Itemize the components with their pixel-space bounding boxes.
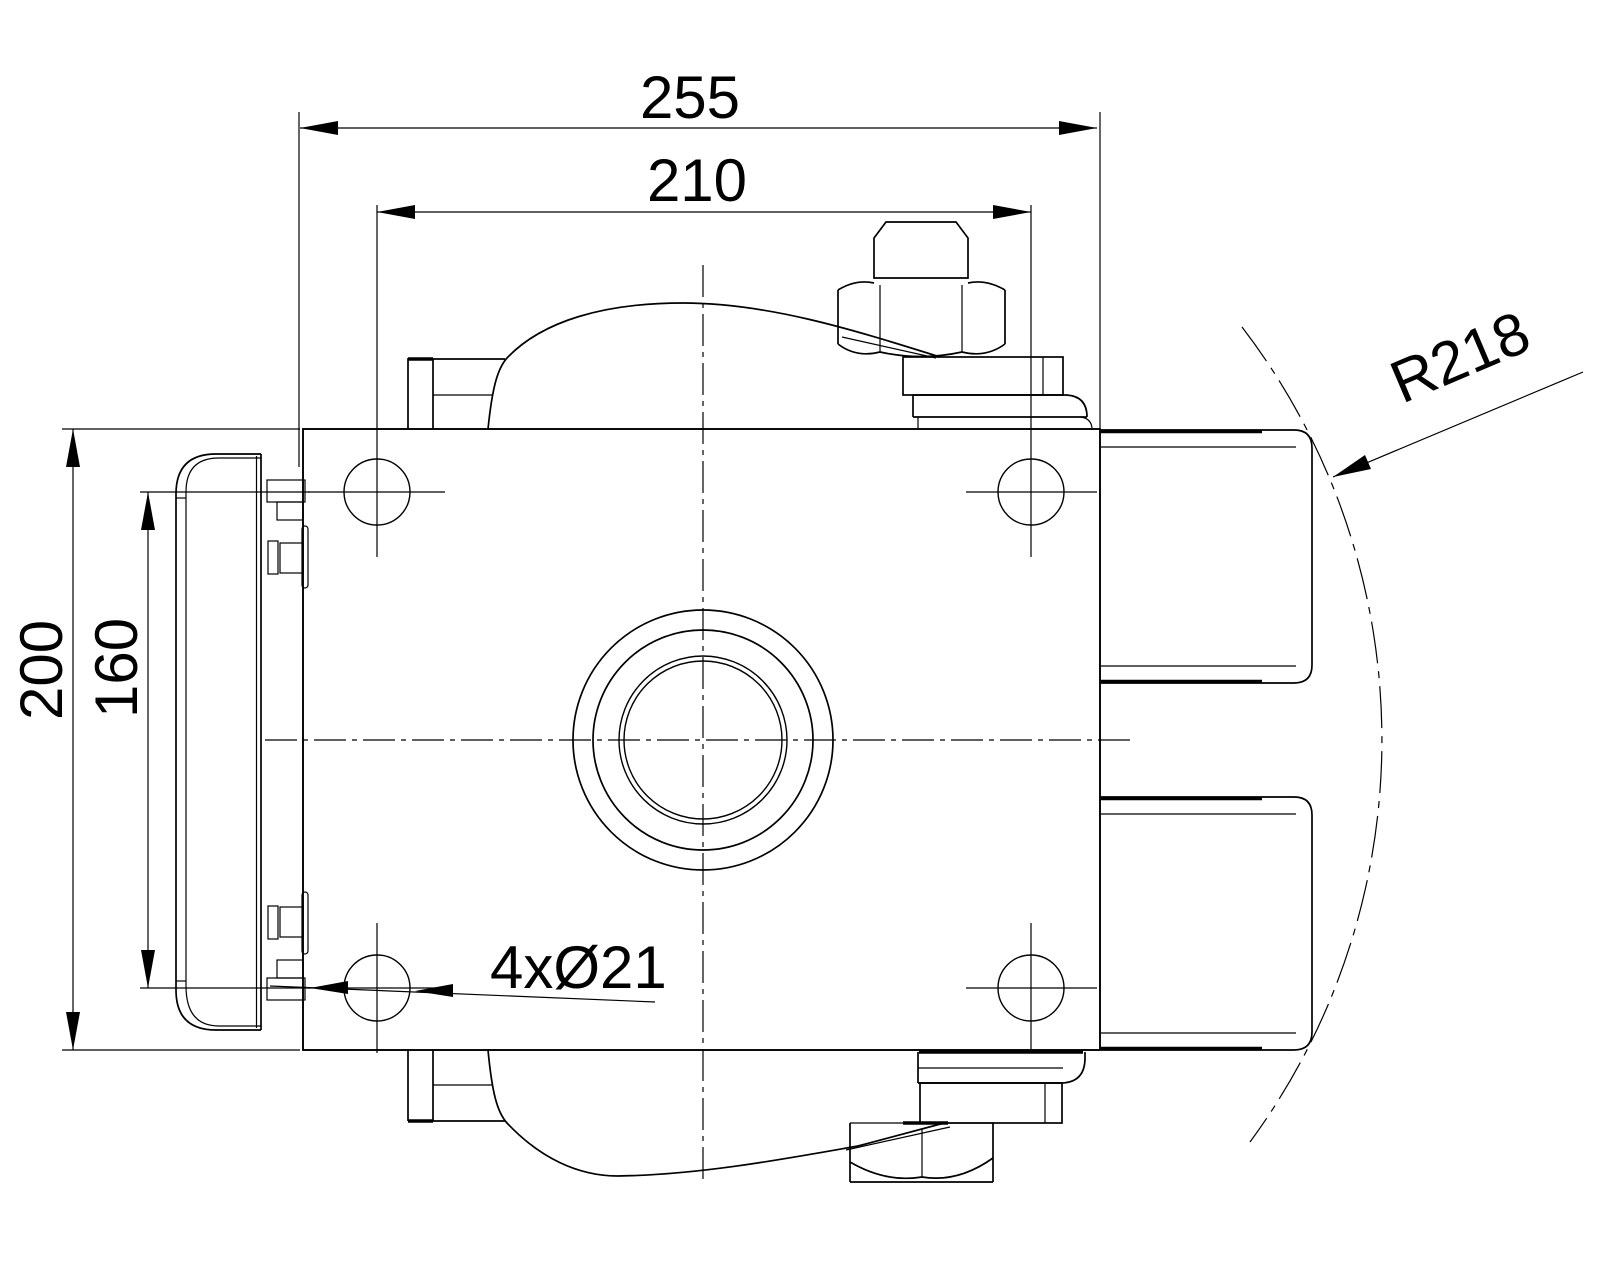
arrowhead	[993, 205, 1031, 219]
dome-top-curve	[488, 303, 940, 429]
arrowhead	[141, 492, 155, 530]
flange-inner-outline	[186, 458, 261, 1026]
bottom-hex-nut	[850, 1123, 993, 1182]
top-hex-nut	[838, 282, 1005, 357]
top-bolt-cap	[874, 222, 968, 278]
bottom-washer	[920, 1083, 1062, 1123]
leader-swing-radius: R218	[1333, 298, 1583, 477]
dome-top-tangent	[842, 337, 936, 358]
arrowhead	[66, 429, 80, 467]
dim-label-r218: R218	[1381, 298, 1539, 416]
right-boss-lower	[1101, 797, 1312, 1050]
dome-bottom-curve	[488, 1050, 948, 1176]
dim-label-200: 200	[8, 620, 75, 720]
leader-mounting-holes: 4xØ21	[270, 934, 667, 1002]
dim-label-210: 210	[647, 147, 747, 214]
arrowhead	[415, 984, 453, 997]
flange-clips-top	[267, 480, 308, 588]
engineering-drawing-canvas: 255 210 200 160 4xØ21 R218	[0, 0, 1600, 1280]
right-boss-upper	[1101, 430, 1312, 683]
dome-bottom-tangent	[846, 1127, 950, 1150]
arrowhead	[66, 1012, 80, 1050]
top-housing-dome	[408, 303, 940, 429]
flange-outer-outline	[176, 454, 261, 1030]
arrowhead	[377, 205, 415, 219]
bottom-housing-dome	[408, 1050, 950, 1176]
arrowhead	[300, 121, 338, 135]
top-bolt-assembly	[838, 222, 1092, 428]
dim-label-4x21: 4xØ21	[490, 934, 667, 1001]
dim-label-160: 160	[83, 618, 150, 718]
dimension-overall-width: 255	[299, 64, 1100, 467]
dimension-hole-spacing-horizontal: 210	[377, 147, 1031, 557]
arrowhead	[141, 950, 155, 988]
arrowhead	[1059, 121, 1097, 135]
left-cover-flange	[176, 454, 308, 1030]
arrowhead	[1333, 455, 1371, 477]
bottom-bolt-assembly	[850, 1052, 1085, 1182]
arrowhead	[310, 981, 348, 994]
main-plate	[303, 429, 1100, 1053]
top-washer-stack	[903, 357, 1092, 428]
flange-clips-bottom	[267, 892, 308, 1000]
dim-label-255: 255	[640, 64, 740, 131]
technical-drawing-page: 255 210 200 160 4xØ21 R218	[0, 0, 1600, 1280]
